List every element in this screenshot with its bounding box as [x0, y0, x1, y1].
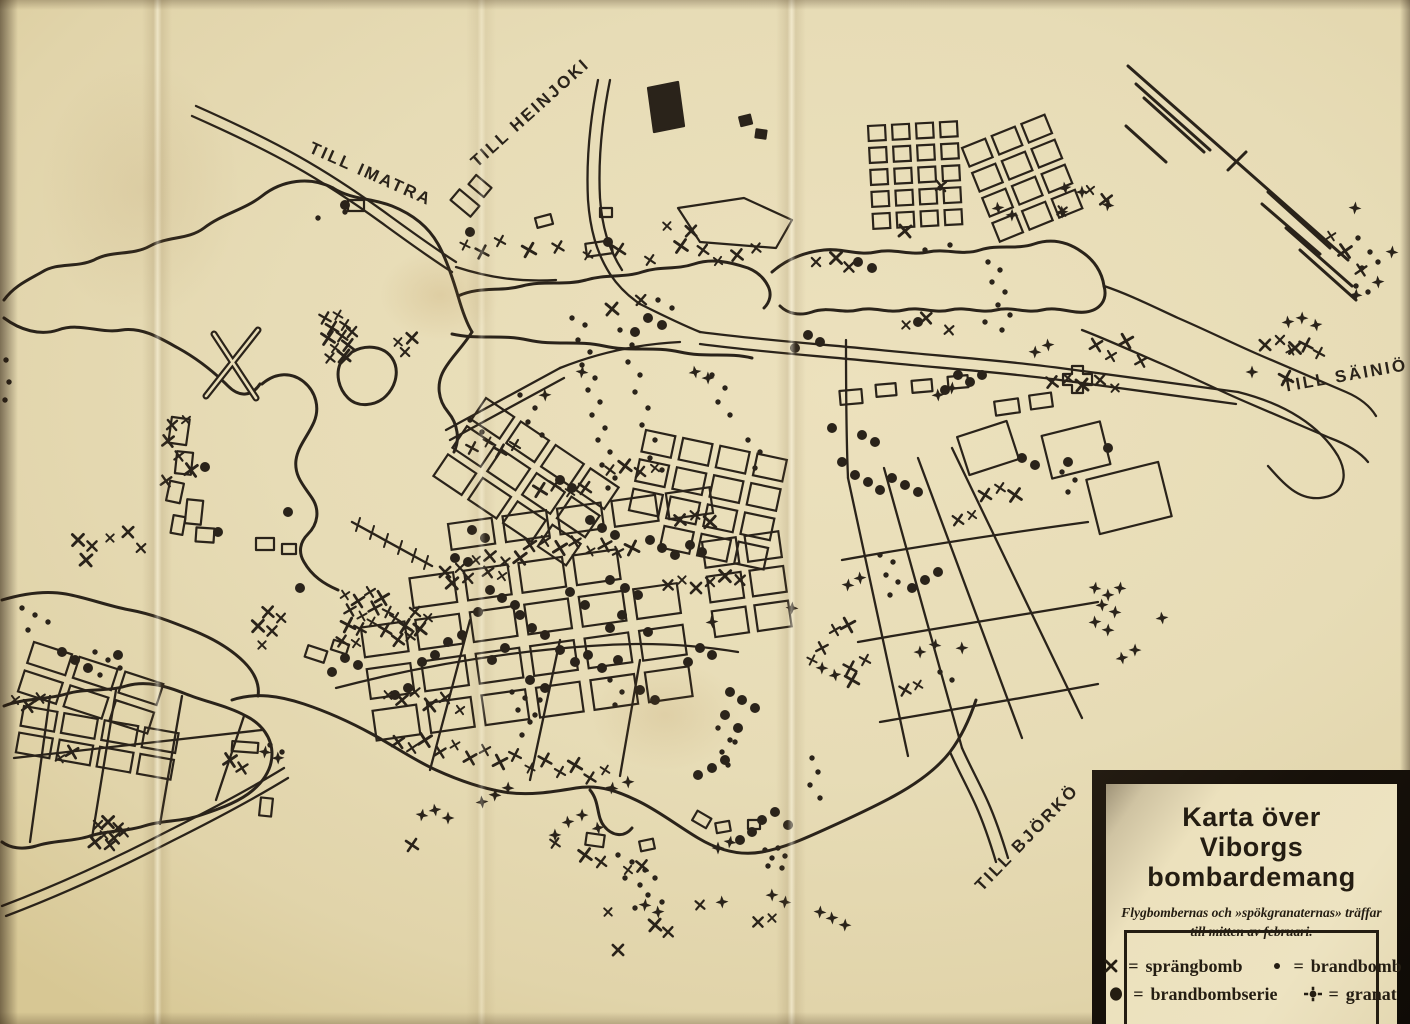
mark-brandbomb: [532, 712, 537, 717]
mark-brandbomb: [949, 677, 954, 682]
mark-sprangbomb: [106, 534, 113, 541]
city-block-grid: [868, 121, 962, 229]
mark-sprangbomb: [751, 243, 760, 252]
city-block: [962, 139, 993, 167]
map-title: Karta över Viborgs bombardemang: [1106, 802, 1397, 893]
mark-brandbomb: [637, 882, 642, 887]
mark-brandbombserie: [487, 655, 497, 665]
road-label-sainio: TILL SÄINIÖ: [1281, 355, 1409, 396]
mark-brandbomb: [595, 437, 600, 442]
mark-sprangbomb: [613, 244, 625, 256]
city-block: [942, 165, 960, 181]
mark-granat: [815, 661, 828, 674]
mark-brandbomb: [732, 739, 737, 744]
mark-brandbomb: [587, 349, 592, 354]
city-block: [749, 566, 786, 596]
mark-brandbomb: [947, 242, 952, 247]
mark-brandbombserie: [645, 535, 655, 545]
mark-brandbombserie: [933, 567, 943, 577]
mark-granat: [1108, 605, 1122, 619]
mark-sprangbomb: [460, 240, 469, 249]
mark-sprangbomb: [1289, 342, 1300, 353]
mark-brandbomb: [883, 572, 888, 577]
mark-brandbombserie: [827, 423, 837, 433]
mark-brandbombserie: [965, 377, 975, 387]
mark-brandbomb: [809, 755, 814, 760]
mark-brandbombserie: [815, 337, 825, 347]
mark-brandbomb: [775, 845, 780, 850]
mark-brandbombserie: [630, 327, 640, 337]
mark-sprangbomb: [509, 749, 521, 761]
mark-granat: [1281, 315, 1295, 329]
mark-sprangbomb: [347, 327, 357, 337]
mark-brandbomb: [655, 297, 660, 302]
mark-sprangbomb: [649, 919, 661, 931]
mark-brandbombserie: [570, 657, 580, 667]
city-block: [916, 123, 934, 139]
mark-brandbomb: [1375, 259, 1380, 264]
mark-granat: [1028, 345, 1042, 359]
mark-brandbomb: [517, 392, 522, 397]
mark-brandbomb: [895, 579, 900, 584]
mark-brandbombserie: [527, 623, 537, 633]
mark-brandbombserie: [707, 650, 717, 660]
mark-sprangbomb: [1276, 336, 1284, 344]
mark-brandbombserie: [605, 623, 615, 633]
mark-brandbombserie: [920, 575, 930, 585]
mark-brandbombserie: [83, 663, 93, 673]
mark-brandbomb: [1355, 235, 1360, 240]
mark-brandbomb: [757, 449, 762, 454]
mark-sprangbomb: [844, 262, 853, 271]
mark-brandbombserie: [617, 610, 627, 620]
legend-entry-sprangbomb: = sprängbomb: [1101, 956, 1242, 977]
mark-brandbomb: [715, 399, 720, 404]
mark-sprangbomb: [344, 604, 355, 615]
city-block: [119, 672, 164, 705]
mark-granat: [715, 895, 729, 909]
mark-sprangbomb: [663, 927, 673, 937]
mark-brandbombserie: [737, 695, 747, 705]
mark-brandbomb: [515, 707, 520, 712]
mark-sprangbomb: [1106, 351, 1116, 361]
mark-sprangbomb: [334, 311, 343, 320]
city-block: [893, 146, 911, 162]
city-block: [992, 214, 1023, 242]
mark-granat: [1113, 581, 1127, 595]
mark-brandbomb: [632, 389, 637, 394]
mark-brandbombserie: [585, 515, 595, 525]
mark-brandbomb: [479, 429, 484, 434]
mark-brandbomb: [3, 357, 8, 362]
city-block: [97, 747, 134, 773]
mark-brandbomb: [999, 327, 1004, 332]
mark-sprangbomb: [495, 236, 505, 246]
mark-sprangbomb: [522, 243, 536, 257]
city-block: [716, 446, 750, 474]
mark-brandbombserie: [790, 343, 800, 353]
mark-brandbomb: [629, 859, 634, 864]
mark-brandbombserie: [525, 675, 535, 685]
mark-brandbomb: [105, 657, 110, 662]
mark-brandbomb: [629, 342, 634, 347]
mark-granat: [1088, 615, 1102, 629]
mark-brandbombserie: [725, 687, 735, 697]
mark-brandbomb: [2, 397, 7, 402]
mark-sprangbomb: [369, 602, 382, 615]
mark-granat: [955, 641, 969, 655]
mark-sprangbomb: [464, 752, 476, 764]
mark-granat: [785, 601, 799, 615]
city-block: [895, 190, 913, 206]
mark-brandbomb: [537, 697, 542, 702]
mark-brandbombserie: [565, 587, 575, 597]
mark-brandbombserie: [857, 430, 867, 440]
mark-brandbomb: [509, 689, 514, 694]
mark-sprangbomb: [696, 901, 705, 910]
mark-brandbomb: [519, 732, 524, 737]
mark-brandbomb: [615, 852, 620, 857]
mark-sprangbomb: [401, 348, 410, 357]
mark-sprangbomb: [424, 699, 436, 711]
mark-brandbombserie: [1017, 453, 1027, 463]
mark-brandbomb: [589, 412, 594, 417]
mark-brandbomb: [715, 725, 720, 730]
city-block: [712, 607, 749, 637]
mark-brandbomb: [525, 419, 530, 424]
mark-sprangbomb: [753, 917, 762, 926]
mark-sprangbomb: [596, 857, 606, 867]
mark-sprangbomb: [579, 482, 591, 494]
city-block-grid: [962, 115, 1082, 242]
mark-sprangbomb: [606, 303, 618, 315]
mark-sprangbomb: [731, 249, 742, 260]
mark-sprangbomb: [691, 583, 701, 593]
mark-sprangbomb: [319, 312, 330, 323]
mark-granat: [428, 803, 443, 818]
mark-brandbomb: [639, 422, 644, 427]
mark-brandbombserie: [567, 483, 577, 493]
city-block: [919, 189, 937, 205]
mark-brandbomb: [575, 337, 580, 342]
mark-brandbombserie: [650, 695, 660, 705]
mark-granat: [913, 645, 926, 658]
mark-granat: [841, 578, 855, 592]
mark-brandbombserie: [467, 525, 477, 535]
mark-sprangbomb: [451, 741, 460, 750]
mark-sprangbomb: [72, 534, 83, 545]
mark-brandbombserie: [57, 647, 67, 657]
mark-brandbomb: [817, 795, 822, 800]
mark-brandbombserie: [515, 610, 525, 620]
mark-brandbombserie: [750, 703, 760, 713]
mark-brandbombserie: [583, 650, 593, 660]
mark-brandbombserie: [733, 723, 743, 733]
city-block: [518, 557, 566, 593]
city-block: [871, 191, 889, 207]
mark-sprangbomb: [418, 733, 431, 746]
mark-brandbombserie: [693, 770, 703, 780]
mark-sprangbomb: [406, 839, 418, 851]
mark-brandbombserie: [597, 523, 607, 533]
city-block: [940, 121, 958, 137]
mark-sprangbomb: [979, 489, 991, 501]
city-block: [61, 713, 98, 739]
mark-brandbomb: [585, 387, 590, 392]
mark-brandbomb: [727, 737, 732, 742]
mark-sprangbomb: [945, 326, 954, 335]
mark-sprangbomb: [830, 252, 841, 263]
map-title-line2: Viborgs bombardemang: [1106, 832, 1397, 892]
mark-sprangbomb: [1009, 489, 1022, 502]
mark-sprangbomb: [277, 614, 286, 623]
city-block: [679, 438, 713, 466]
mark-brandbombserie: [390, 690, 400, 700]
mark-brandbombserie: [685, 540, 695, 550]
city-block: [373, 705, 421, 741]
mark-brandbombserie: [953, 370, 963, 380]
legend-label: sprängbomb: [1145, 956, 1242, 977]
mark-sprangbomb: [456, 706, 464, 714]
city-block: [641, 430, 675, 458]
mark-brandbombserie: [480, 533, 490, 543]
mark-sprangbomb: [352, 639, 361, 648]
mark-sprangbomb: [394, 338, 402, 346]
mark-brandbombserie: [720, 755, 730, 765]
mark-brandbombserie: [875, 485, 885, 495]
mark-brandbombserie: [327, 667, 337, 677]
mark-brandbombserie: [940, 385, 950, 395]
mark-brandbombserie: [695, 643, 705, 653]
mark-sprangbomb: [995, 483, 1005, 493]
brandbombserie-disc-icon: [1106, 986, 1126, 1002]
mark-granat: [475, 795, 489, 809]
mark-brandbomb: [669, 305, 674, 310]
mark-brandbombserie: [633, 590, 643, 600]
mark-sprangbomb: [663, 222, 671, 230]
mark-sprangbomb: [914, 681, 923, 690]
city-block: [703, 504, 737, 532]
mark-brandbomb: [612, 702, 617, 707]
mark-brandbombserie: [485, 585, 495, 595]
mark-granat: [712, 842, 725, 855]
mark-brandbombserie: [283, 507, 293, 517]
mark-brandbomb: [592, 375, 597, 380]
city-block: [943, 187, 961, 203]
mark-brandbombserie: [605, 575, 615, 585]
mark-granat: [1155, 611, 1170, 626]
mark-sprangbomb: [968, 511, 976, 519]
mark-brandbombserie: [555, 475, 565, 485]
mark-sprangbomb: [446, 577, 458, 589]
mark-brandbomb: [97, 672, 102, 677]
mark-sprangbomb: [1095, 375, 1105, 385]
city-block: [917, 145, 935, 161]
mark-sprangbomb: [89, 836, 101, 848]
mark-granat: [1348, 201, 1362, 215]
legend-box: = sprängbomb = brandbomb: [1124, 930, 1379, 1024]
city-block: [941, 143, 959, 159]
city-block: [710, 475, 744, 503]
mark-granat: [1101, 623, 1115, 637]
mark-brandbomb: [607, 449, 612, 454]
mark-granat: [1349, 288, 1363, 302]
legend-entry-brandbomb: = brandbomb: [1267, 956, 1402, 977]
mark-sprangbomb: [553, 541, 566, 554]
mark-brandbomb: [745, 437, 750, 442]
mark-brandbombserie: [707, 763, 717, 773]
mark-brandbomb: [652, 875, 657, 880]
city-block: [633, 583, 681, 619]
mark-granat: [1095, 598, 1109, 612]
mark-brandbomb: [637, 372, 642, 377]
mark-sprangbomb: [252, 620, 263, 631]
mark-brandbomb: [45, 619, 50, 624]
mark-brandbomb: [989, 279, 994, 284]
mark-brandbombserie: [620, 583, 630, 593]
mark-sprangbomb: [953, 515, 964, 526]
mark-sprangbomb: [812, 258, 820, 266]
mark-sprangbomb: [678, 576, 685, 583]
mark-brandbomb: [607, 677, 612, 682]
mark-sprangbomb: [698, 245, 709, 256]
mark-sprangbomb: [407, 333, 418, 344]
mark-brandbombserie: [417, 657, 427, 667]
mark-brandbombserie: [913, 317, 923, 327]
mark-brandbomb: [6, 379, 11, 384]
mark-brandbomb: [659, 467, 664, 472]
mark-granat: [828, 668, 843, 683]
mark-granat: [778, 895, 792, 909]
mark-sprangbomb: [584, 251, 593, 260]
mark-granat: [575, 808, 588, 821]
mark-granat: [621, 775, 635, 789]
city-block: [1052, 190, 1083, 218]
mark-brandbomb: [995, 302, 1000, 307]
mark-sprangbomb: [533, 483, 546, 496]
mark-brandbomb: [539, 432, 544, 437]
map-title-line1: Karta över: [1106, 802, 1397, 832]
mark-brandbombserie: [597, 663, 607, 673]
mark-sprangbomb: [604, 908, 612, 916]
mark-brandbombserie: [850, 470, 860, 480]
mark-brandbombserie: [907, 583, 917, 593]
granat-ray-dot-icon: [1302, 986, 1322, 1002]
mark-brandbombserie: [870, 437, 880, 447]
mark-sprangbomb: [844, 662, 857, 675]
mark-brandbombserie: [643, 627, 653, 637]
mark-sprangbomb: [584, 772, 595, 783]
mark-sprangbomb: [456, 564, 465, 573]
mark-brandbomb: [815, 769, 820, 774]
mark-brandbomb: [937, 669, 942, 674]
mark-brandbombserie: [603, 237, 613, 247]
city-block: [873, 213, 891, 229]
mark-brandbomb: [582, 322, 587, 327]
mark-brandbombserie: [670, 550, 680, 560]
mark-brandbomb: [267, 742, 272, 747]
mark-brandbomb: [32, 612, 37, 617]
city-block: [481, 689, 529, 725]
mark-sprangbomb: [1300, 339, 1313, 352]
city-block: [870, 169, 888, 185]
mark-sprangbomb: [1327, 232, 1336, 241]
mark-sprangbomb: [902, 321, 910, 329]
mark-brandbombserie: [457, 630, 467, 640]
mark-brandbombserie: [403, 683, 413, 693]
mark-brandbomb: [982, 319, 987, 324]
mark-sprangbomb: [625, 541, 639, 555]
mark-brandbomb: [579, 362, 584, 367]
city-block: [869, 147, 887, 163]
mark-brandbomb: [1065, 489, 1070, 494]
mark-brandbomb: [937, 185, 942, 190]
mark-brandbomb: [807, 782, 812, 787]
mark-sprangbomb: [568, 758, 581, 771]
mark-brandbombserie: [540, 630, 550, 640]
city-block: [1002, 152, 1033, 180]
mark-sprangbomb: [816, 642, 827, 653]
city-block: [921, 210, 939, 226]
mark-granat: [1114, 650, 1129, 665]
mark-sprangbomb: [651, 464, 659, 472]
mark-brandbombserie: [863, 477, 873, 487]
mark-sprangbomb: [352, 595, 364, 607]
mark-brandbomb: [997, 267, 1002, 272]
mark-brandbomb: [602, 425, 607, 430]
mark-brandbomb: [887, 592, 892, 597]
mark-brandbomb: [597, 399, 602, 404]
city-block: [892, 124, 910, 140]
mark-brandbomb: [612, 475, 617, 480]
city-block: [747, 483, 781, 511]
mark-brandbombserie: [463, 557, 473, 567]
mark-brandbomb: [719, 749, 724, 754]
mark-brandbombserie: [497, 593, 507, 603]
mark-granat: [638, 898, 652, 912]
mark-sprangbomb: [480, 745, 490, 755]
mark-granat: [1101, 588, 1114, 601]
mark-brandbomb: [1072, 477, 1077, 482]
mark-brandbombserie: [635, 685, 645, 695]
mark-brandbomb: [1002, 289, 1007, 294]
mark-brandbombserie: [113, 650, 123, 660]
city-block: [1022, 202, 1053, 230]
mark-sprangbomb: [1090, 339, 1102, 351]
mark-granat: [651, 905, 665, 919]
legend-row-1: = sprängbomb = brandbomb: [1133, 956, 1370, 977]
legend-label: granat: [1346, 984, 1397, 1005]
mark-brandbomb: [532, 405, 537, 410]
city-block: [361, 621, 409, 657]
mark-sprangbomb: [472, 556, 480, 564]
mark-sprangbomb: [1314, 348, 1324, 358]
mark-brandbomb: [1365, 289, 1370, 294]
mark-sprangbomb: [704, 516, 716, 528]
mark-sprangbomb: [258, 641, 265, 648]
mark-brandbomb: [117, 665, 122, 670]
city-block: [753, 454, 787, 482]
city-block: [754, 601, 791, 631]
mark-brandbomb: [522, 695, 527, 700]
mark-sprangbomb: [325, 353, 334, 362]
mark-brandbombserie: [783, 820, 793, 830]
mark-brandbombserie: [697, 547, 707, 557]
mark-granat: [853, 571, 867, 585]
mark-brandbomb: [652, 437, 657, 442]
mark-brandbombserie: [450, 553, 460, 563]
mark-sprangbomb: [357, 611, 366, 620]
